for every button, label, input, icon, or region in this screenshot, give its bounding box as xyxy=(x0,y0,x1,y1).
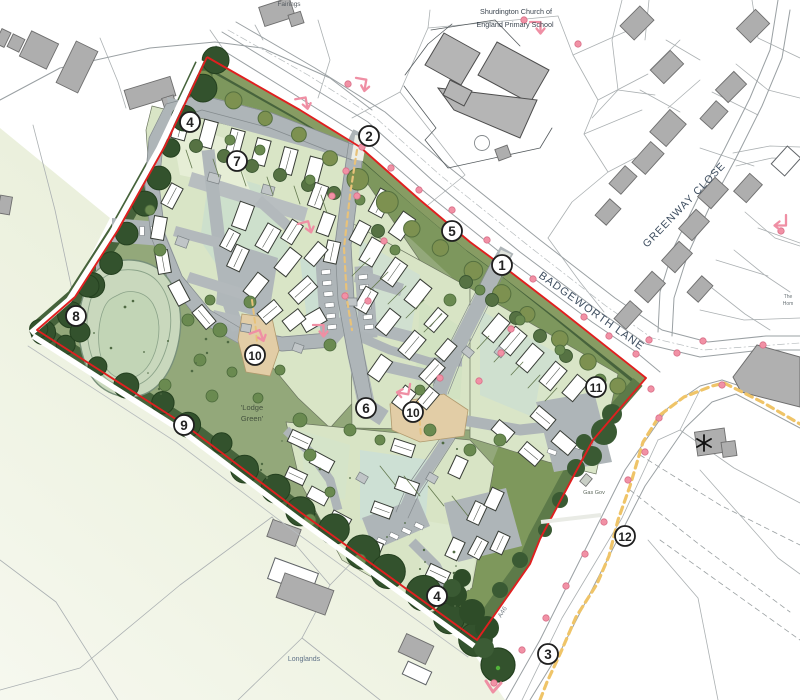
svg-text:4: 4 xyxy=(433,589,441,604)
svg-text:Shurdington Church of: Shurdington Church of xyxy=(480,7,552,16)
svg-text:Fairings: Fairings xyxy=(277,1,301,8)
svg-text:England Primary School: England Primary School xyxy=(476,20,554,29)
svg-text:Gas Gov: Gas Gov xyxy=(583,490,605,496)
svg-text:The: The xyxy=(784,294,793,300)
svg-text:10: 10 xyxy=(248,349,262,363)
svg-text:7: 7 xyxy=(233,154,241,169)
svg-text:Hom: Hom xyxy=(783,301,794,307)
svg-text:11: 11 xyxy=(590,381,603,395)
svg-text:8: 8 xyxy=(72,309,80,324)
svg-text:10: 10 xyxy=(406,406,420,420)
svg-text:9: 9 xyxy=(180,418,188,433)
svg-text:Green': Green' xyxy=(241,414,264,423)
svg-text:2: 2 xyxy=(365,129,373,144)
svg-text:3: 3 xyxy=(544,647,552,662)
svg-text:Longlands: Longlands xyxy=(288,656,321,663)
svg-text:5: 5 xyxy=(448,224,456,239)
svg-text:6: 6 xyxy=(362,401,370,416)
svg-text:4: 4 xyxy=(186,115,194,130)
svg-text:12: 12 xyxy=(618,530,632,544)
svg-text:'Lodge: 'Lodge xyxy=(241,403,263,412)
svg-text:1: 1 xyxy=(498,258,506,273)
